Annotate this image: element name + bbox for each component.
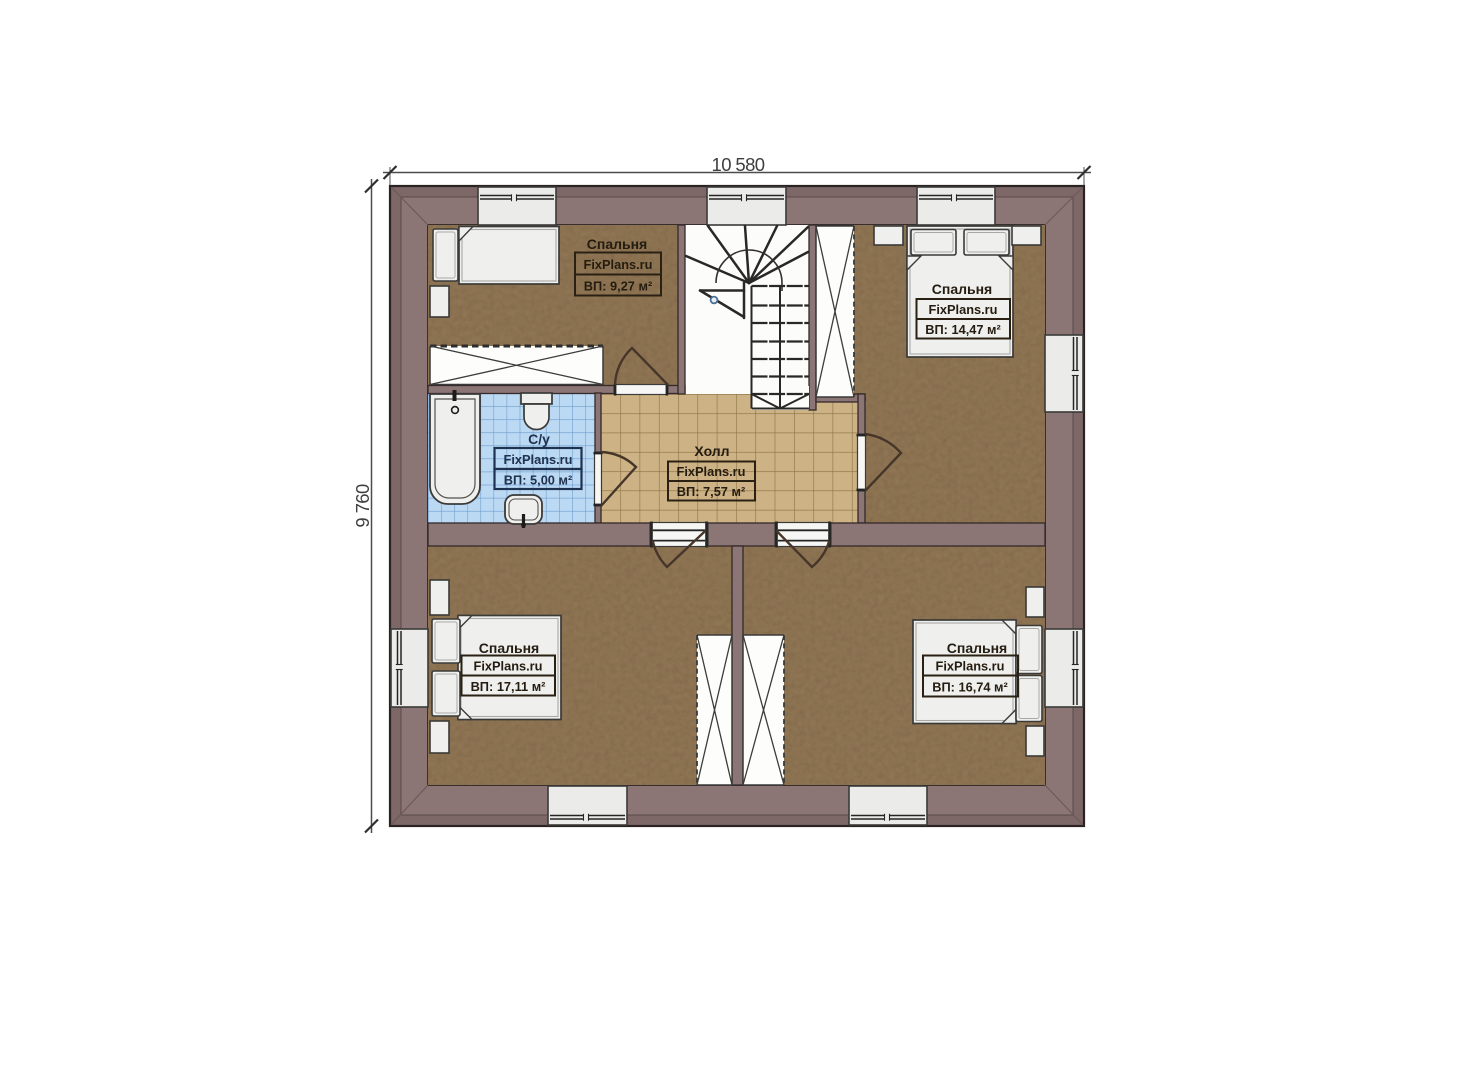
- svg-text:10 580: 10 580: [712, 154, 765, 175]
- svg-text:FixPlans.ru: FixPlans.ru: [504, 452, 573, 467]
- svg-text:FixPlans.ru: FixPlans.ru: [584, 257, 653, 272]
- svg-text:Спальня: Спальня: [932, 281, 992, 297]
- svg-text:ВП: 5,00 м²: ВП: 5,00 м²: [504, 473, 572, 488]
- svg-text:Спальня: Спальня: [479, 640, 539, 656]
- svg-text:С/у: С/у: [528, 431, 550, 447]
- svg-text:Холл: Холл: [694, 443, 729, 459]
- svg-text:FixPlans.ru: FixPlans.ru: [929, 302, 998, 317]
- svg-text:9 760: 9 760: [352, 484, 373, 528]
- svg-text:ВП: 7,57 м²: ВП: 7,57 м²: [677, 484, 745, 499]
- svg-text:FixPlans.ru: FixPlans.ru: [936, 659, 1005, 674]
- svg-text:ВП: 9,27 м²: ВП: 9,27 м²: [584, 279, 652, 294]
- svg-text:Спальня: Спальня: [587, 236, 647, 252]
- svg-text:ВП: 17,11 м²: ВП: 17,11 м²: [471, 679, 546, 694]
- svg-text:ВП: 14,47 м²: ВП: 14,47 м²: [925, 322, 1001, 337]
- svg-text:FixPlans.ru: FixPlans.ru: [474, 659, 543, 674]
- svg-text:Спальня: Спальня: [947, 640, 1007, 656]
- svg-text:ВП: 16,74 м²: ВП: 16,74 м²: [932, 680, 1008, 695]
- svg-text:FixPlans.ru: FixPlans.ru: [677, 464, 746, 479]
